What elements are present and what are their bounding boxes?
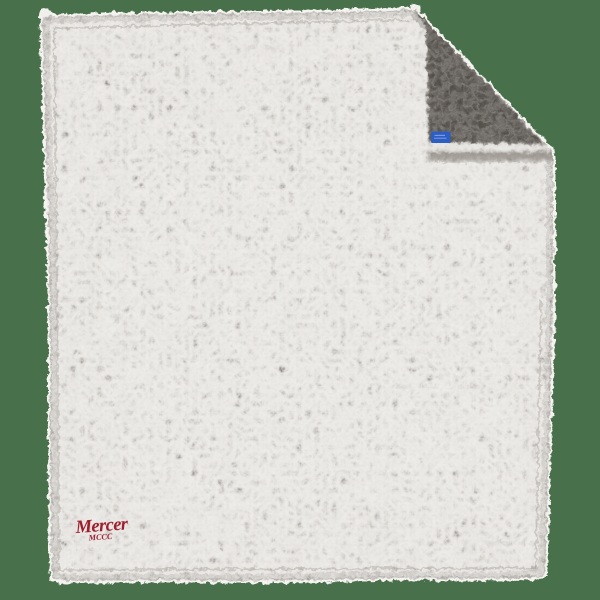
svg-text:MCCC: MCCC [87,532,113,543]
